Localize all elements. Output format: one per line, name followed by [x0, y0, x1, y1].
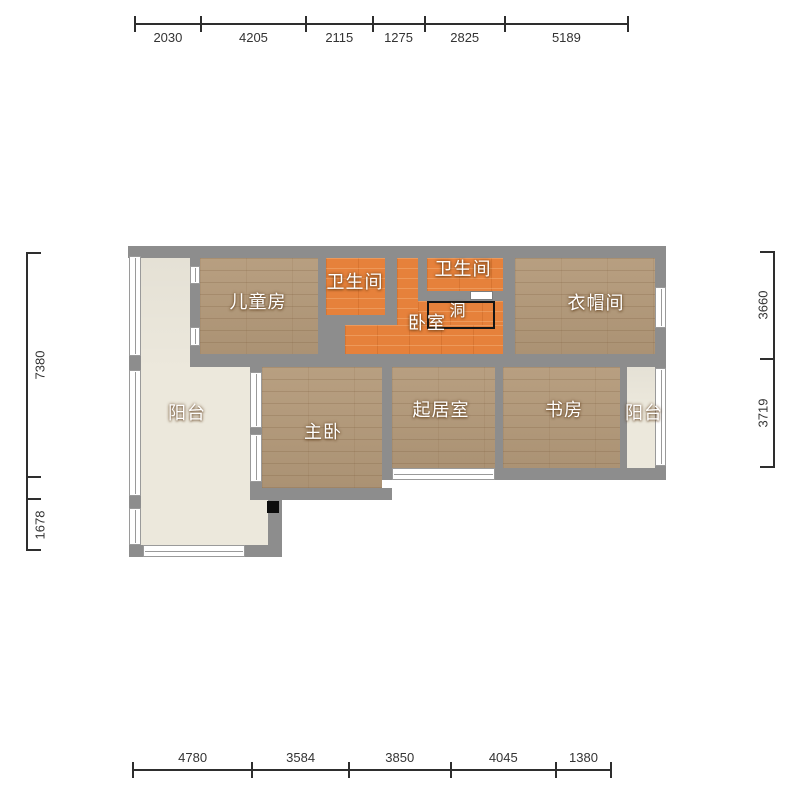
dim-value: 3850: [385, 750, 414, 765]
dim-segment: 4780: [133, 748, 252, 778]
dim-segment: 3584: [252, 748, 349, 778]
dim-value: 4045: [489, 750, 518, 765]
dim-segment: [19, 477, 49, 499]
dim-segment: 1275: [373, 16, 425, 48]
floor-plan-canvas: 儿童房 卫生间 卫生间 卧室 洞 衣帽间 阳台 主卧 起居室 书房 阳台 203…: [0, 0, 800, 800]
window-master-2: [250, 434, 262, 482]
dim-segment: 2115: [306, 16, 372, 48]
window-children-2: [190, 327, 200, 346]
window-balcony-left-3: [129, 508, 141, 545]
dim-value: 3719: [756, 398, 771, 427]
dim-value: 2030: [153, 30, 182, 45]
wall-bathroom-bedroom-divider: [385, 258, 397, 325]
dimension-col-left: 7380 1678: [19, 253, 49, 550]
label-bedroom: 卧室: [408, 309, 446, 335]
window-balcony-left-2: [129, 370, 141, 496]
dim-segment: 2030: [135, 16, 201, 48]
wall-corner-chunk: [318, 325, 345, 354]
dim-value: 2825: [450, 30, 479, 45]
dim-value: 4780: [178, 750, 207, 765]
label-children-room: 儿童房: [230, 288, 287, 314]
window-balcony-left-1: [129, 256, 141, 356]
dim-segment: 4205: [201, 16, 306, 48]
dimension-col-right: 3660 3719: [752, 252, 782, 467]
dim-segment: 4045: [451, 748, 556, 778]
dim-segment: 5189: [505, 16, 628, 48]
dim-value: 2115: [325, 30, 353, 45]
label-study: 书房: [545, 396, 583, 422]
dim-segment: 3850: [349, 748, 451, 778]
dim-value: 1678: [33, 510, 48, 539]
dim-segment: 3660: [752, 252, 782, 359]
door-opening-bar: [470, 291, 493, 300]
dim-value: 7380: [33, 350, 48, 379]
dim-segment: 1380: [556, 748, 611, 778]
dimension-row-top: 2030 4205 2115 1275 2825 5189: [135, 16, 628, 48]
dim-value: 3660: [756, 291, 771, 320]
dim-segment: 7380: [19, 253, 49, 477]
label-living-room: 起居室: [413, 396, 470, 422]
dim-value: 4205: [239, 30, 268, 45]
wall-master-living: [382, 354, 392, 478]
window-living-bottom: [392, 468, 495, 480]
dim-value: 5189: [552, 30, 581, 45]
label-balcony-left: 阳台: [168, 399, 206, 425]
wall-living-study: [495, 354, 503, 478]
column-marker: [267, 501, 279, 513]
wall-bedroom-cloakroom: [503, 258, 515, 354]
dimension-row-bottom: 4780 3584 3850 4045 1380: [133, 748, 611, 778]
window-children-1: [190, 266, 200, 284]
label-opening: 洞: [449, 297, 466, 321]
window-balcony-bottom: [143, 545, 245, 557]
label-cloakroom: 衣帽间: [568, 289, 625, 315]
dim-value: 3584: [286, 750, 315, 765]
label-master-bedroom: 主卧: [304, 418, 342, 444]
wall-top-exterior: [128, 246, 666, 258]
dim-segment: 3719: [752, 359, 782, 467]
window-cloakroom-right: [655, 287, 666, 328]
label-bathroom-top: 卫生间: [327, 268, 384, 294]
dim-value: 1275: [384, 30, 413, 45]
dim-segment: 2825: [425, 16, 505, 48]
window-master-1: [250, 372, 262, 428]
label-bathroom-right: 卫生间: [435, 255, 492, 281]
dim-segment: 1678: [19, 499, 49, 550]
dim-value: 1380: [569, 750, 598, 765]
label-balcony-right: 阳台: [625, 399, 663, 425]
